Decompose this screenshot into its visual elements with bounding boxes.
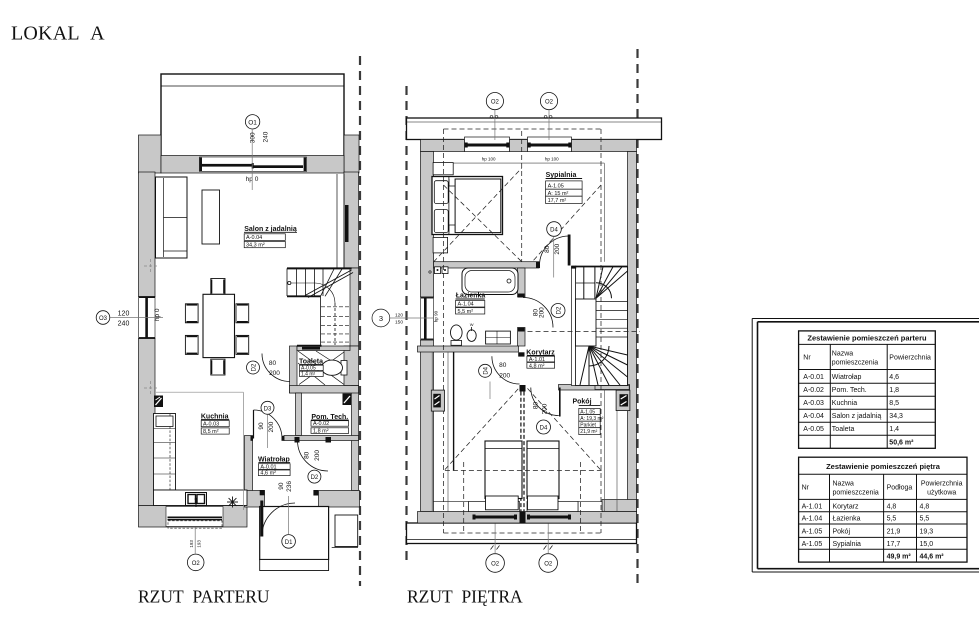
svg-text:A-0.05: A-0.05 — [803, 426, 824, 433]
svg-text:Pokój: Pokój — [572, 399, 591, 406]
svg-text:80: 80 — [544, 245, 551, 253]
svg-text:90: 90 — [258, 422, 265, 430]
svg-text:O2: O2 — [545, 100, 554, 106]
svg-text:A-1.05: A-1.05 — [580, 409, 595, 415]
svg-text:Toaleta: Toaleta — [832, 426, 855, 433]
svg-text:W: W — [470, 322, 474, 327]
svg-text:44,6 m²: 44,6 m² — [920, 554, 945, 561]
svg-text:O1: O1 — [248, 119, 257, 126]
svg-text:A-0.03: A-0.03 — [203, 422, 219, 428]
svg-text:Zestawienie pomieszczeń parter: Zestawienie pomieszczeń parteru — [807, 334, 927, 343]
svg-text:Nazwa: Nazwa — [832, 351, 854, 358]
svg-text:49,9 m²: 49,9 m² — [887, 554, 912, 561]
svg-text:Sypialnia: Sypialnia — [546, 172, 577, 179]
svg-text:Zestawienie pomieszczeń piętra: Zestawienie pomieszczeń piętra — [826, 462, 941, 471]
svg-text:pomieszczenia: pomieszczenia — [832, 360, 878, 367]
svg-text:A-0.02: A-0.02 — [803, 387, 824, 394]
svg-text:A-0.02: A-0.02 — [313, 421, 329, 427]
svg-text:Salon z jadalnią: Salon z jadalnią — [832, 413, 882, 420]
svg-text:A-1.04: A-1.04 — [802, 516, 823, 523]
svg-text:4,8: 4,8 — [887, 503, 897, 510]
svg-text:pomieszczenia: pomieszczenia — [833, 490, 879, 497]
svg-text:200: 200 — [539, 307, 546, 318]
svg-text:200: 200 — [269, 370, 280, 377]
svg-text:O2: O2 — [491, 100, 500, 106]
svg-text:Sypialnia: Sypialnia — [833, 541, 862, 548]
svg-text:Parkiet: Parkiet — [580, 422, 596, 428]
svg-text:A-1.05: A-1.05 — [548, 184, 564, 190]
svg-text:200: 200 — [314, 450, 321, 461]
svg-text:RZUT PIĘTRA: RZUT PIĘTRA — [407, 587, 523, 607]
svg-text:użytkowa: użytkowa — [927, 490, 956, 497]
svg-text:34,3 m²: 34,3 m² — [246, 243, 265, 249]
svg-text:120: 120 — [395, 312, 403, 318]
svg-text:80: 80 — [533, 402, 540, 410]
svg-text:Powierzchnia: Powierzchnia — [921, 481, 963, 488]
svg-text:A-1.04: A-1.04 — [458, 302, 474, 308]
svg-text:hp 90: hp 90 — [433, 310, 438, 322]
svg-text:Powierzchnia: Powierzchnia — [889, 355, 931, 362]
svg-text:A: 19,3 m²: A: 19,3 m² — [580, 416, 603, 422]
svg-text:1,8: 1,8 — [889, 387, 899, 394]
svg-text:200: 200 — [541, 403, 548, 414]
svg-text:D4: D4 — [540, 426, 548, 432]
svg-text:34,3: 34,3 — [889, 413, 903, 420]
svg-text:300: 300 — [249, 132, 256, 143]
svg-text:80: 80 — [304, 451, 311, 459]
svg-text:8,5: 8,5 — [889, 400, 899, 407]
svg-text:RZUT PARTERU: RZUT PARTERU — [138, 587, 270, 607]
svg-text:120: 120 — [118, 311, 130, 318]
svg-text:200: 200 — [554, 243, 561, 254]
svg-text:1,4 m²: 1,4 m² — [301, 372, 316, 378]
svg-text:193: 193 — [197, 540, 202, 548]
svg-text:3: 3 — [379, 314, 383, 323]
svg-text:O2: O2 — [491, 562, 500, 568]
svg-text:200: 200 — [499, 372, 510, 379]
svg-text:Nr: Nr — [802, 485, 810, 492]
svg-text:8,5 m²: 8,5 m² — [203, 429, 219, 435]
svg-text:A-1.01: A-1.01 — [529, 357, 545, 363]
svg-text:19,3: 19,3 — [920, 529, 934, 536]
svg-text:21,9 m²: 21,9 m² — [580, 429, 597, 435]
svg-text:4,8 m²: 4,8 m² — [529, 363, 545, 369]
svg-text:193: 193 — [189, 540, 194, 548]
svg-text:80: 80 — [269, 360, 277, 367]
svg-text:4,6 m²: 4,6 m² — [260, 471, 276, 477]
svg-text:17,7: 17,7 — [887, 541, 901, 548]
svg-text:O3: O3 — [99, 316, 108, 322]
svg-text:50,6 m²: 50,6 m² — [889, 439, 914, 446]
svg-text:D2: D2 — [311, 475, 319, 481]
svg-text:A: 15 m²: A: 15 m² — [548, 191, 569, 197]
svg-text:hp 100: hp 100 — [545, 157, 559, 162]
svg-text:D4: D4 — [484, 366, 490, 374]
svg-text:LOKAL A: LOKAL A — [11, 23, 105, 45]
svg-text:A-0.04: A-0.04 — [803, 413, 824, 420]
svg-text:240: 240 — [118, 321, 130, 328]
svg-text:D1: D1 — [285, 540, 293, 546]
svg-text:90: 90 — [278, 482, 285, 490]
svg-text:Łazienka: Łazienka — [833, 516, 861, 523]
svg-text:D4: D4 — [550, 228, 558, 234]
svg-text:236: 236 — [286, 481, 293, 492]
svg-text:O2: O2 — [544, 562, 553, 568]
svg-text:4,6: 4,6 — [889, 374, 899, 381]
svg-text:Korytarz: Korytarz — [833, 503, 860, 510]
svg-text:17,7 m²: 17,7 m² — [548, 198, 567, 204]
svg-text:5,5 m²: 5,5 m² — [458, 309, 474, 315]
svg-text:A-1.05: A-1.05 — [802, 529, 823, 536]
svg-text:5,5: 5,5 — [920, 516, 930, 523]
svg-text:Kuchnia: Kuchnia — [832, 400, 857, 407]
svg-text:21,9: 21,9 — [887, 529, 901, 536]
svg-text:Nr: Nr — [803, 355, 811, 362]
svg-text:hp 100: hp 100 — [482, 157, 496, 162]
svg-text:D2: D2 — [252, 363, 258, 371]
svg-text:A-0.01: A-0.01 — [803, 374, 824, 381]
svg-text:150: 150 — [395, 319, 403, 325]
svg-text:1,4: 1,4 — [889, 426, 899, 433]
svg-text:4,8: 4,8 — [920, 503, 930, 510]
svg-text:15,0: 15,0 — [920, 541, 934, 548]
svg-text:Wiatrołap: Wiatrołap — [832, 374, 862, 381]
svg-text:Nazwa: Nazwa — [833, 481, 855, 488]
svg-text:D3: D3 — [264, 406, 272, 412]
svg-text:Pokój: Pokój — [833, 529, 851, 536]
svg-text:A-0.01: A-0.01 — [260, 464, 276, 470]
svg-text:80: 80 — [499, 362, 507, 369]
svg-text:Pom. Tech.: Pom. Tech. — [832, 387, 867, 394]
svg-text:hp 0: hp 0 — [154, 308, 161, 321]
svg-text:A-1.05: A-1.05 — [802, 541, 823, 548]
svg-text:5,5: 5,5 — [887, 516, 897, 523]
svg-text:200: 200 — [268, 421, 275, 432]
svg-text:Podłoga: Podłoga — [887, 485, 913, 492]
svg-text:A-0.03: A-0.03 — [803, 400, 824, 407]
svg-text:O2: O2 — [192, 561, 201, 567]
svg-text:A-1.01: A-1.01 — [802, 503, 823, 510]
svg-text:A-0.04: A-0.04 — [246, 235, 262, 241]
svg-text:240: 240 — [262, 131, 269, 142]
svg-text:D2: D2 — [557, 306, 563, 314]
svg-text:1,8 m²: 1,8 m² — [313, 429, 329, 435]
